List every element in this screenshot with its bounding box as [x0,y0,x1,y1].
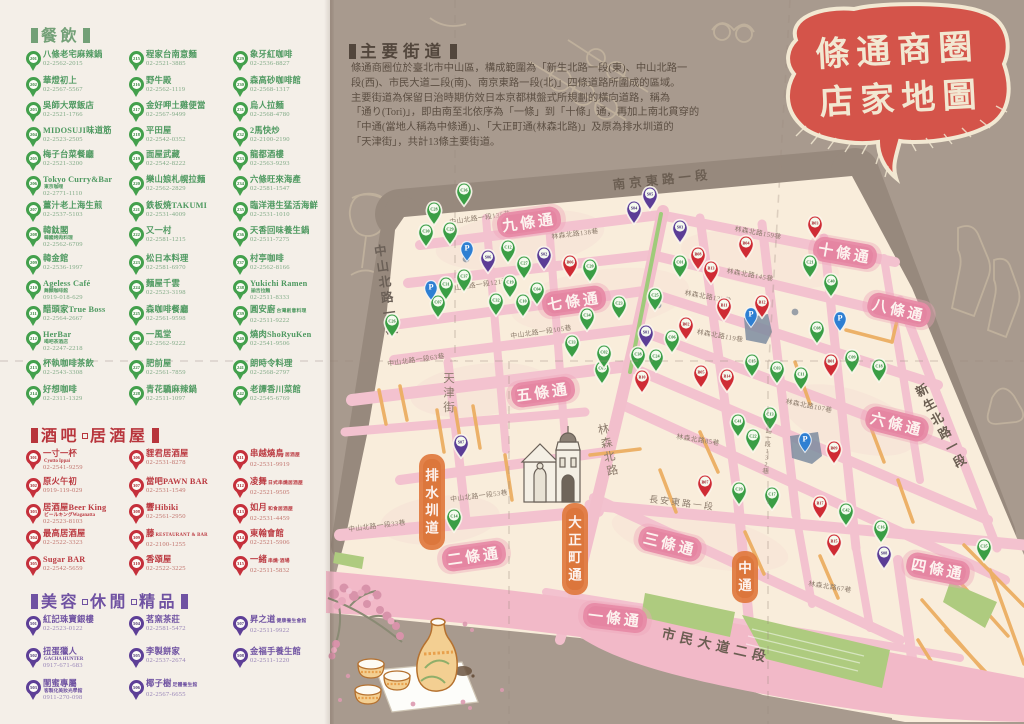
svg-text:津: 津 [443,387,455,400]
svg-text:C19: C19 [506,279,513,284]
svg-text:B14: B14 [723,373,731,378]
svg-text:C07: C07 [434,299,442,304]
svg-text:B13: B13 [707,265,714,270]
svg-text:通: 通 [568,568,582,583]
svg-text:B04: B04 [742,240,750,245]
svg-text:C21: C21 [806,259,813,264]
svg-text:S05: S05 [647,191,654,196]
svg-text:C34: C34 [583,312,591,317]
svg-text:P: P [464,243,469,252]
svg-text:中: 中 [738,560,752,576]
svg-text:道: 道 [425,520,439,536]
svg-text:C06: C06 [668,334,675,339]
svg-text:P: P [748,309,753,318]
svg-text:C02: C02 [600,349,607,354]
svg-text:C23: C23 [615,300,622,305]
svg-text:S01: S01 [643,329,650,334]
svg-text:排: 排 [425,467,439,483]
svg-text:通: 通 [738,578,752,593]
svg-text:C28: C28 [430,206,437,211]
svg-text:B05: B05 [697,369,704,374]
svg-text:C35: C35 [980,543,987,548]
svg-text:C27: C27 [520,260,528,265]
svg-text:C10: C10 [519,298,526,303]
svg-text:街: 街 [443,400,455,414]
svg-text:中: 中 [373,242,387,259]
svg-text:C09: C09 [848,354,855,359]
svg-text:P: P [802,434,807,443]
svg-text:C31: C31 [442,281,449,286]
svg-text:C04: C04 [533,286,541,291]
svg-text:C32: C32 [492,297,499,302]
svg-text:C36: C36 [460,187,467,192]
svg-text:S03: S03 [677,224,684,229]
svg-text:P: P [837,313,842,322]
svg-text:C17: C17 [768,491,776,496]
svg-text:B11: B11 [721,302,728,307]
svg-text:C24: C24 [652,353,660,358]
svg-text:C37: C37 [460,273,468,278]
svg-text:C14: C14 [450,513,458,518]
svg-text:C11: C11 [797,371,804,376]
svg-text:B02: B02 [682,321,689,326]
svg-text:C40: C40 [827,278,834,283]
svg-text:C29: C29 [446,226,453,231]
svg-text:S06: S06 [485,254,492,259]
svg-text:B07: B07 [701,479,709,484]
svg-text:天: 天 [443,373,455,385]
svg-text:B10: B10 [638,374,645,379]
svg-text:C12: C12 [504,244,511,249]
svg-text:B17: B17 [816,500,824,505]
svg-text:S02: S02 [541,251,548,256]
svg-text:圳: 圳 [425,503,439,518]
svg-text:C22: C22 [749,433,756,438]
svg-text:C20: C20 [586,263,593,268]
svg-text:水: 水 [425,485,439,501]
svg-text:C08: C08 [813,325,820,330]
svg-text:大: 大 [568,514,582,530]
svg-text:C41: C41 [734,418,741,423]
svg-text:北: 北 [378,273,393,290]
svg-text:S08: S08 [881,550,888,555]
svg-text:C16: C16 [877,524,884,529]
svg-text:P: P [428,282,433,291]
svg-text:町: 町 [568,550,582,565]
svg-text:C25: C25 [651,292,658,297]
svg-text:B09: B09 [830,445,837,450]
svg-text:C42: C42 [842,507,849,512]
svg-text:正: 正 [568,533,582,548]
svg-text:S04: S04 [631,205,638,210]
svg-text:C33: C33 [568,339,575,344]
svg-text:B03: B03 [811,220,818,225]
svg-text:C38: C38 [634,351,641,356]
svg-text:C39: C39 [735,486,742,491]
svg-text:路: 路 [380,289,395,306]
svg-text:B06: B06 [566,259,573,264]
svg-text:C30: C30 [422,228,429,233]
svg-text:C03: C03 [773,365,780,370]
svg-text:C01: C01 [676,259,683,264]
svg-text:S07: S07 [458,439,465,444]
svg-text:山: 山 [375,258,389,275]
svg-text:B08: B08 [694,251,701,256]
svg-text:B15: B15 [830,538,837,543]
svg-text:C18: C18 [875,363,882,368]
svg-text:B12: B12 [758,299,765,304]
svg-text:C26: C26 [388,318,395,323]
